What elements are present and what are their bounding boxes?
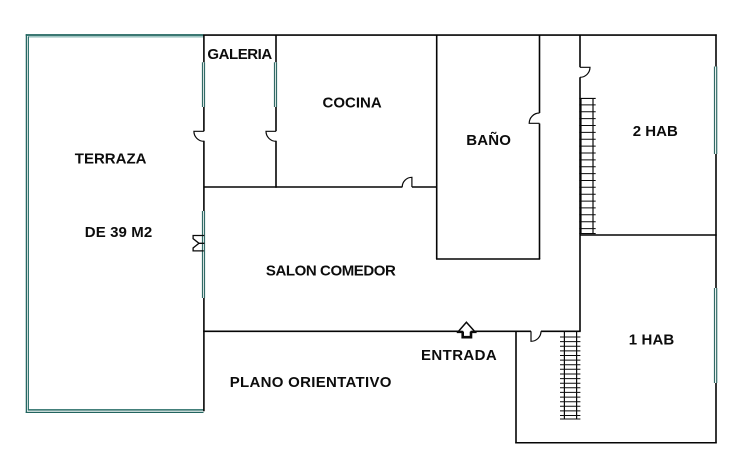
svg-text:SALON COMEDOR: SALON COMEDOR (266, 262, 396, 279)
svg-text:DE 39 M2: DE 39 M2 (85, 224, 153, 241)
svg-text:PLANO ORIENTATIVO: PLANO ORIENTATIVO (230, 374, 392, 391)
svg-text:1 HAB: 1 HAB (629, 332, 675, 349)
svg-text:TERRAZA: TERRAZA (75, 151, 147, 168)
svg-text:BAÑO: BAÑO (466, 131, 511, 149)
svg-text:GALERIA: GALERIA (207, 46, 272, 63)
svg-text:ENTRADA: ENTRADA (421, 347, 497, 364)
svg-text:COCINA: COCINA (323, 95, 382, 112)
svg-text:2 HAB: 2 HAB (633, 123, 678, 140)
